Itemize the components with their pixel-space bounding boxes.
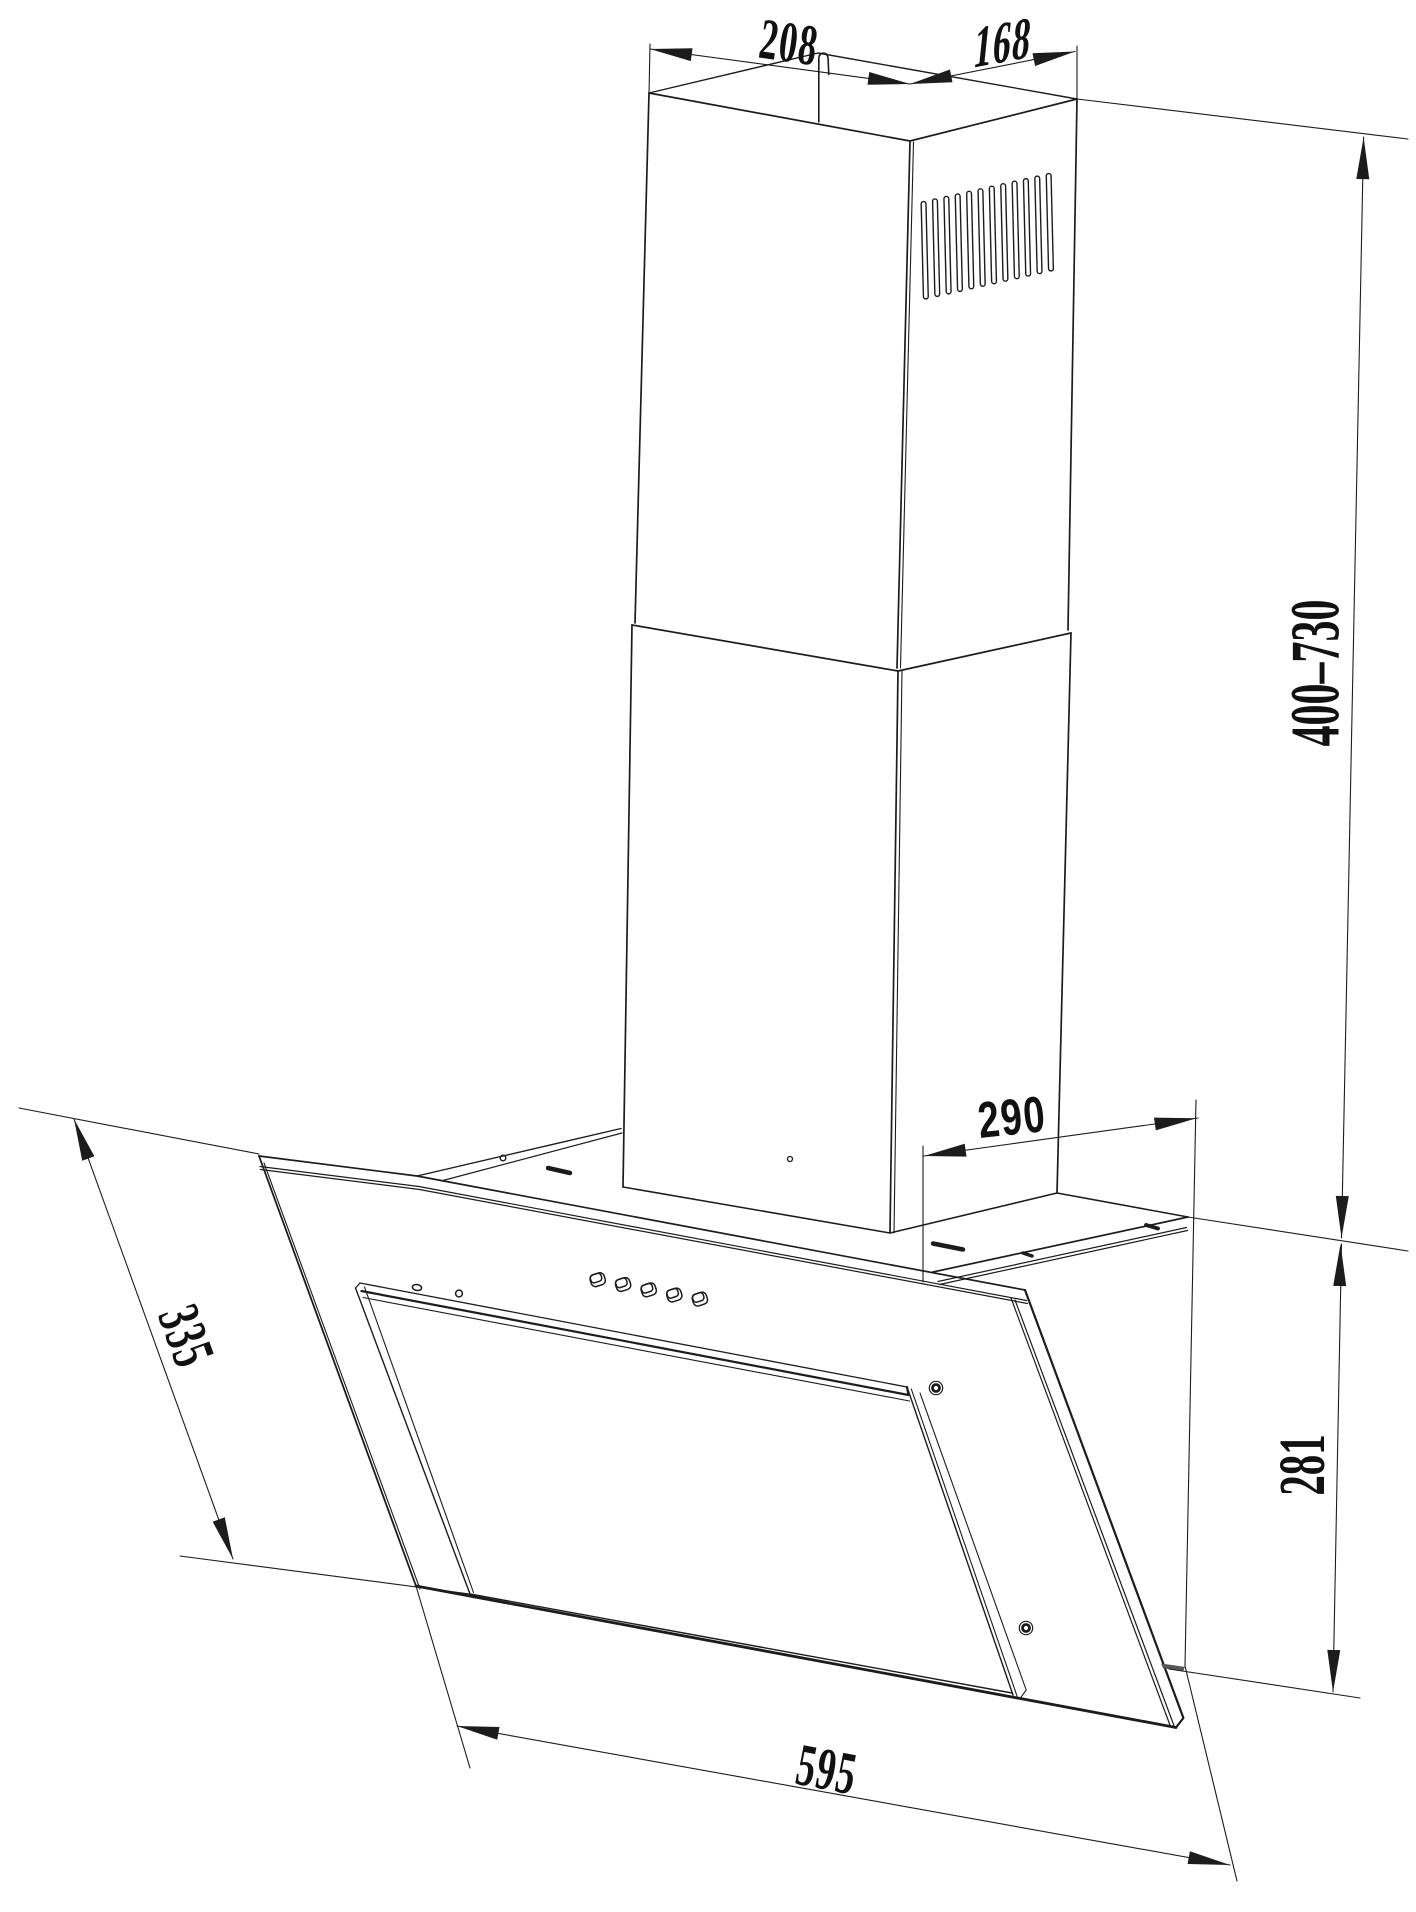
svg-text:595: 595	[791, 1730, 863, 1807]
svg-text:290: 290	[975, 1085, 1049, 1150]
svg-text:400–730: 400–730	[1278, 600, 1354, 747]
svg-text:281: 281	[1265, 1434, 1338, 1495]
svg-text:168: 168	[971, 3, 1036, 81]
svg-text:208: 208	[756, 8, 823, 79]
